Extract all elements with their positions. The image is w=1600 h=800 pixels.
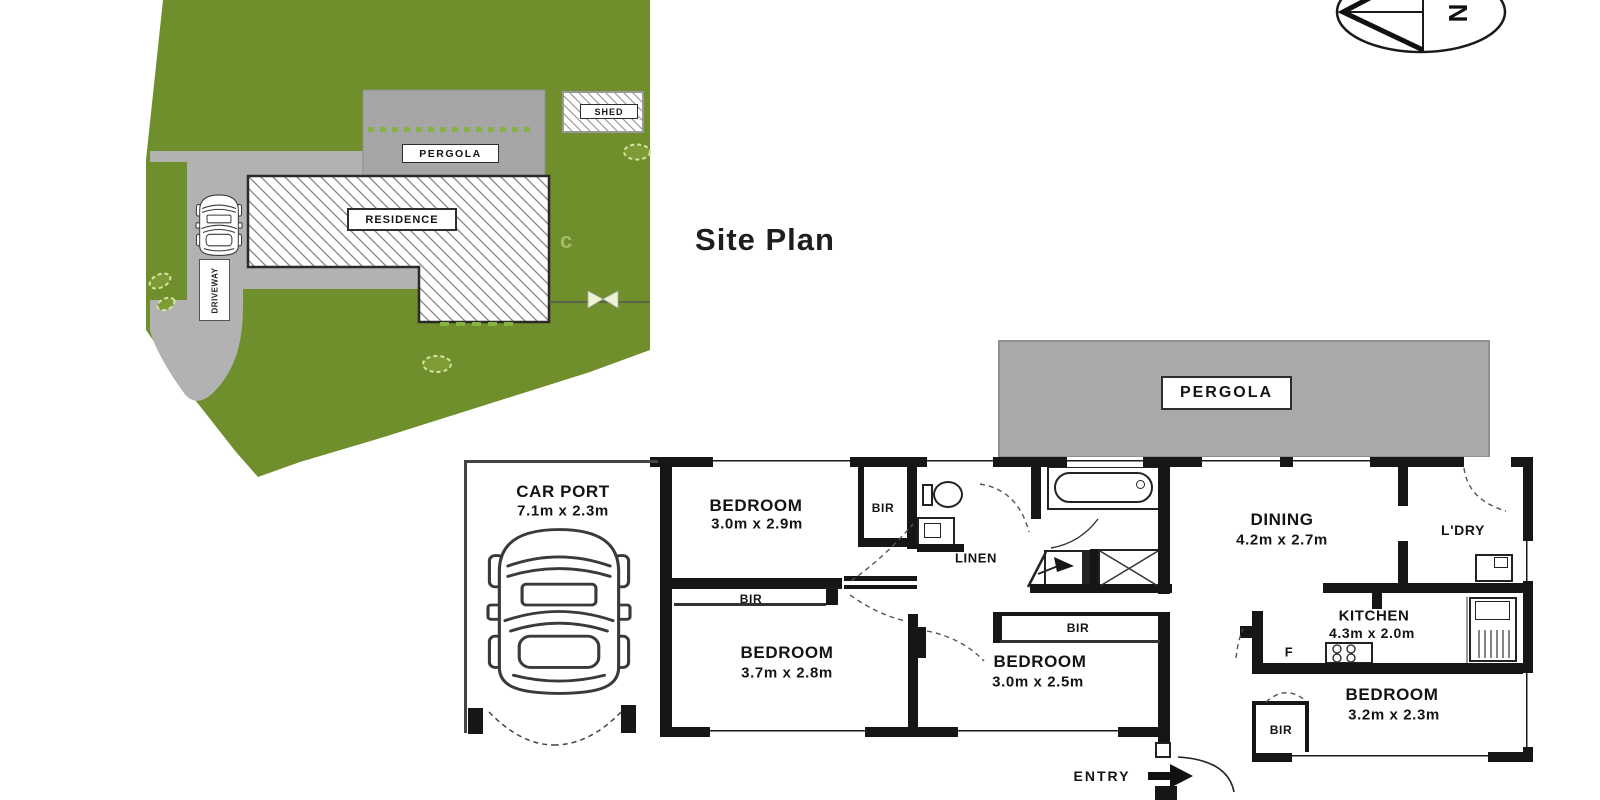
wall <box>1398 541 1408 591</box>
room-label-dining: DINING <box>1250 510 1313 530</box>
site-plan-title: Site Plan <box>695 222 835 258</box>
residence-label-box: RESIDENCE <box>347 208 457 231</box>
window <box>1523 541 1533 581</box>
room-label-carport: CAR PORT <box>516 482 610 502</box>
wall <box>907 457 917 549</box>
carport-outline <box>464 460 658 463</box>
door-leaf <box>1240 626 1252 638</box>
cased-opening-slit <box>844 581 917 585</box>
room-dims-dining: 4.2m x 2.7m <box>1236 532 1328 549</box>
cooktop-icon <box>1325 642 1373 664</box>
window <box>713 457 850 467</box>
driveway-label: DRIVEWAY <box>210 267 219 313</box>
shed-label-box: SHED <box>580 104 638 119</box>
room-dims-bedroom1: 3.0m x 2.9m <box>711 516 803 533</box>
door-leaf <box>918 627 926 658</box>
basin-inner <box>924 523 941 538</box>
floorplan-pergola-label: PERGOLA <box>1180 384 1273 402</box>
site-pergola-label-box: PERGOLA <box>402 144 499 163</box>
wall <box>908 614 918 737</box>
shower-icon <box>1098 549 1160 588</box>
room-label-bedroom4: BEDROOM <box>1346 685 1439 705</box>
carport-outline <box>464 460 467 733</box>
wall <box>826 585 838 605</box>
toilet-bowl <box>933 481 963 508</box>
car-top-view-icon <box>196 195 242 255</box>
wall <box>993 612 1002 643</box>
wall <box>1159 612 1168 643</box>
bir-label-1: BIR <box>872 501 894 515</box>
laundry-trough-inner <box>1494 557 1508 568</box>
bir-shelf <box>1000 640 1160 643</box>
wall <box>858 463 864 540</box>
window <box>1293 457 1370 467</box>
room-dims-bedroom3: 3.0m x 2.5m <box>992 674 1084 691</box>
site-pergola-label: PERGOLA <box>419 148 481 160</box>
room-label-kitchen: KITCHEN <box>1339 608 1410 625</box>
wall <box>1252 611 1263 665</box>
floorplan-page: c <box>0 0 1600 800</box>
room-dims-carport: 7.1m x 2.3m <box>517 503 609 520</box>
wall <box>1030 584 1172 593</box>
residence-label: RESIDENCE <box>365 214 438 226</box>
wall <box>660 578 842 589</box>
wall <box>1158 457 1170 594</box>
site-mark: c <box>560 228 572 253</box>
entry-label: ENTRY <box>1074 768 1131 784</box>
window <box>927 457 993 467</box>
bir-label-3: BIR <box>1067 621 1089 635</box>
window <box>1523 673 1533 747</box>
shed-label: SHED <box>594 107 623 117</box>
wall <box>993 612 1168 616</box>
wall <box>1323 583 1523 593</box>
window <box>1202 457 1280 467</box>
window <box>710 727 865 737</box>
bir-label-2: BIR <box>740 592 762 606</box>
window <box>1067 457 1143 467</box>
room-dims-bedroom2: 3.7m x 2.8m <box>741 665 833 682</box>
carport-post <box>621 705 636 733</box>
wall <box>1252 663 1533 674</box>
wall <box>660 457 672 737</box>
laundry-label: L'DRY <box>1441 522 1485 538</box>
window <box>1292 752 1488 762</box>
room-label-bedroom3: BEDROOM <box>994 652 1087 672</box>
wall <box>1090 549 1098 588</box>
bath-drain <box>1136 480 1145 489</box>
wall <box>1031 463 1041 519</box>
room-label-bedroom1: BEDROOM <box>710 496 803 516</box>
room-dims-kitchen: 4.3m x 2.0m <box>1329 625 1415 641</box>
floorplan-pergola-label-box: PERGOLA <box>1161 376 1292 410</box>
door-opening <box>1464 457 1511 467</box>
window <box>958 727 1118 737</box>
kitchen-sink-inner <box>1475 601 1510 620</box>
room-label-bedroom2: BEDROOM <box>741 643 834 663</box>
carport-post <box>468 708 483 734</box>
wall <box>1372 591 1382 609</box>
driveway-label-box: DRIVEWAY <box>199 259 230 321</box>
linen-closet <box>1044 550 1090 587</box>
linen-label: LINEN <box>955 551 997 566</box>
entry-sidelight <box>1155 742 1171 758</box>
entry-wall-stub <box>1155 786 1177 800</box>
room-dims-bedroom4: 3.2m x 2.3m <box>1348 707 1440 724</box>
bir-label-4: BIR <box>1270 723 1292 737</box>
fridge-label: F <box>1285 645 1294 660</box>
toilet-icon <box>922 484 933 506</box>
wall <box>1398 462 1408 506</box>
site-pergola-area <box>363 90 545 176</box>
